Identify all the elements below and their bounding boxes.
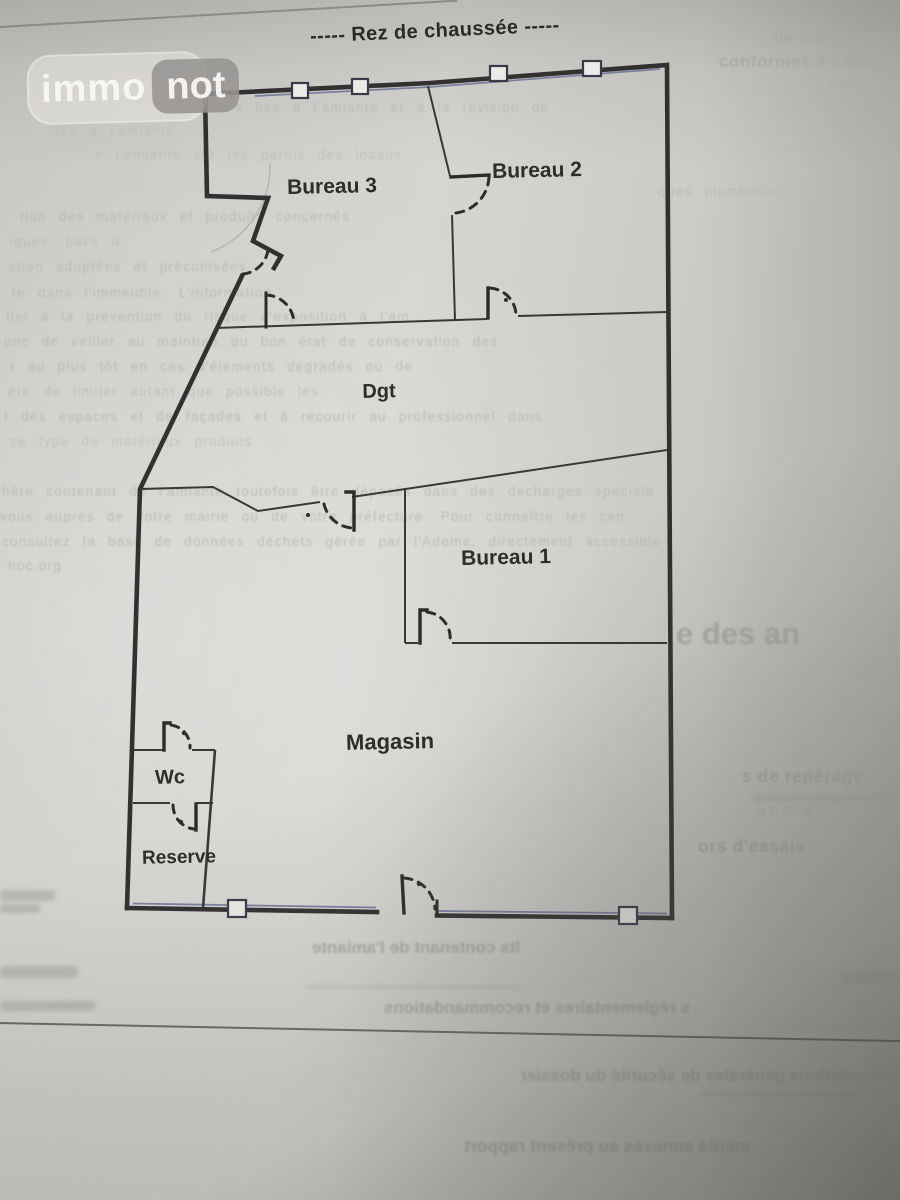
door-arcs (171, 177, 516, 909)
room-label-bureau-3: Bureau 3 (287, 174, 377, 200)
scanned-floor-plan-page: { "logo": { "immo": "immo", "not": "not"… (0, 0, 900, 1200)
immonot-logo-not-badge: not (152, 58, 240, 114)
door-leaves (164, 175, 489, 916)
room-label-bureau-1: Bureau 1 (461, 545, 551, 571)
room-label-magasin: Magasin (346, 728, 435, 756)
door-swing-arc (211, 163, 270, 252)
immonot-logo: immo not (26, 51, 208, 126)
room-label-wc: Wc (155, 766, 185, 790)
exterior-walls (127, 65, 672, 918)
floor-plan-drawing (0, 0, 900, 1200)
room-label-dgt: Dgt (362, 380, 396, 404)
room-label-reserve: Reserve (142, 846, 216, 870)
interior-walls (133, 86, 667, 908)
immonot-logo-immo-text: immo (26, 66, 152, 112)
room-label-bureau-2: Bureau 2 (492, 158, 582, 184)
door-arc-dots (179, 298, 508, 886)
